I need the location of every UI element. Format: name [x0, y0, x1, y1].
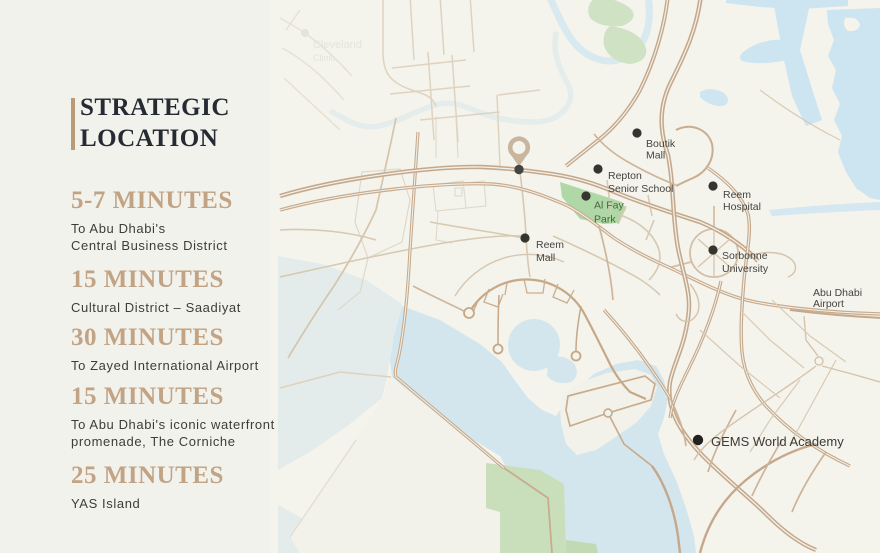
svg-text:Hospital: Hospital — [723, 201, 761, 213]
svg-text:Senior School: Senior School — [608, 183, 673, 195]
svg-text:Cleveland: Cleveland — [313, 39, 362, 51]
svg-text:Mall: Mall — [646, 150, 665, 162]
svg-text:Reem: Reem — [536, 239, 564, 251]
svg-text:Sorbonne: Sorbonne — [722, 250, 768, 262]
svg-text:Mall: Mall — [536, 252, 555, 264]
svg-text:Repton: Repton — [608, 170, 642, 182]
svg-text:Park: Park — [594, 214, 616, 226]
svg-text:Clinic: Clinic — [313, 53, 336, 63]
svg-text:Airport: Airport — [813, 298, 844, 310]
svg-text:Reem: Reem — [723, 189, 751, 201]
svg-text:Boutik: Boutik — [646, 138, 676, 150]
svg-text:Al Fay: Al Fay — [594, 200, 625, 212]
svg-text:GEMS World Academy: GEMS World Academy — [711, 434, 844, 449]
svg-text:University: University — [722, 263, 769, 275]
